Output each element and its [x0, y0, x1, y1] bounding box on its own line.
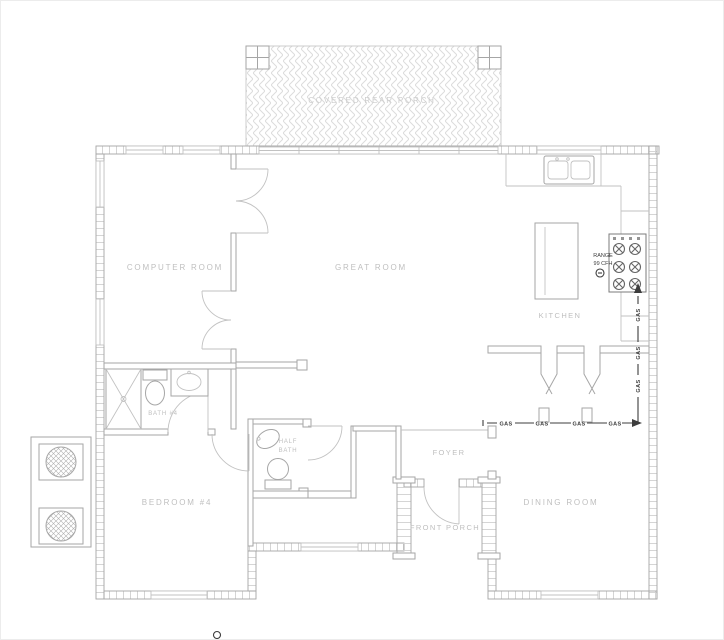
bath4-fixtures [106, 369, 208, 429]
bedroom4-label: BEDROOM #4 [142, 498, 212, 507]
porch-column [478, 46, 501, 69]
doors [168, 169, 459, 524]
porch-column [478, 477, 500, 559]
front-porch-label: FRONT PORCH [410, 523, 480, 532]
half-bath-label: HALF [279, 439, 298, 445]
dining-room-label: DINING ROOM [524, 498, 599, 507]
toilet-icon [143, 370, 167, 405]
cased-opening-jambs [541, 353, 600, 394]
gas-label: GAS [572, 422, 585, 428]
gas-label: GAS [636, 346, 642, 359]
room-labels: COMPUTER ROOM GREAT ROOM KITCHEN BATH #4… [127, 263, 599, 532]
kitchen-label: KITCHEN [539, 311, 582, 320]
window [537, 146, 601, 154]
wall-post [582, 408, 592, 422]
rear-porch-label: COVERED REAR PORCH [308, 96, 436, 105]
window [151, 591, 207, 599]
bath4-label: BATH #4 [148, 411, 178, 417]
range [609, 234, 646, 292]
floor-plan-drawing: COVERED REAR PORCH [0, 0, 724, 640]
porch-column [246, 46, 269, 69]
bedroom4-door-swing [212, 434, 249, 471]
gas-line: GAS GAS GAS GAS GAS GAS GAS [483, 283, 642, 428]
wall-post [539, 408, 549, 422]
front-door-swing [424, 487, 459, 524]
double-door-swing [202, 291, 231, 349]
interior-walls [104, 154, 649, 546]
half-bath-door-swing [308, 426, 342, 460]
floor-plan-canvas: COVERED REAR PORCH [1, 1, 724, 640]
rear-porch: COVERED REAR PORCH [246, 46, 501, 146]
rear-glazing-window [259, 147, 498, 154]
window [301, 543, 358, 551]
half-bath-label: BATH [279, 448, 298, 454]
hvac-units [31, 437, 91, 547]
kitchen-island [535, 223, 578, 299]
gas-meter-icon [596, 269, 604, 277]
window [541, 591, 598, 599]
vanity-sink-icon [171, 369, 208, 396]
kitchen-sink [544, 156, 594, 184]
gas-label: GAS [608, 422, 621, 428]
window [126, 146, 163, 154]
gas-label: GAS [499, 422, 512, 428]
half-bath-fixtures [253, 426, 291, 489]
hvac-fan-icon [39, 508, 83, 544]
window [96, 299, 104, 345]
gas-label: GAS [636, 308, 642, 321]
great-room-label: GREAT ROOM [335, 263, 407, 272]
range-cfh-label: 99 CFH [594, 261, 613, 267]
window [183, 146, 220, 154]
shower-icon [106, 369, 141, 429]
gas-label: GAS [636, 379, 642, 392]
double-door-swing [236, 169, 268, 233]
foyer-label: FOYER [433, 448, 466, 457]
gas-arrow-icon [632, 419, 642, 427]
stray-mark-icon [214, 632, 221, 639]
wall-post [297, 360, 307, 370]
computer-room-label: COMPUTER ROOM [127, 263, 223, 272]
hvac-fan-icon [39, 444, 83, 480]
range-label: RANGE [593, 253, 613, 259]
window [96, 161, 104, 207]
toilet-icon [265, 459, 291, 490]
gas-label: GAS [535, 422, 548, 428]
